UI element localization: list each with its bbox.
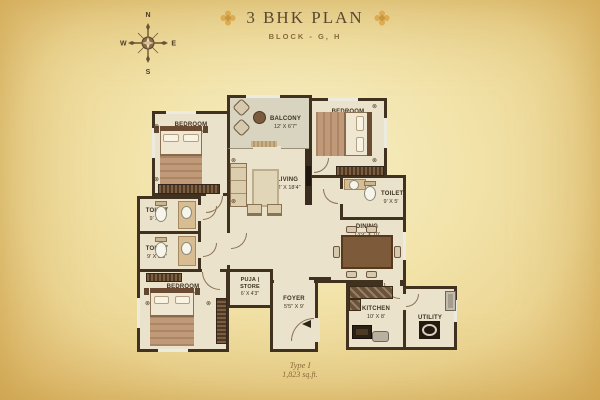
utility-sink — [445, 291, 456, 311]
bed-blanket — [316, 112, 346, 156]
double-bed — [150, 288, 194, 346]
balcony-table — [253, 111, 266, 124]
compass-west-label: W — [120, 41, 127, 48]
compass-icon — [128, 23, 168, 63]
kitchen-counter — [349, 286, 393, 299]
wc — [364, 186, 376, 201]
kitchen-counter — [349, 299, 361, 311]
ornament-icon — [220, 10, 236, 26]
rug — [252, 169, 279, 207]
ornament-icon — [374, 10, 390, 26]
wc — [155, 206, 167, 222]
pillow — [175, 296, 191, 304]
compass-east-label: E — [171, 41, 176, 48]
window — [246, 95, 280, 98]
door-mat — [251, 141, 277, 147]
pillow — [183, 134, 198, 142]
room-puja-store: PUJA | STORE 6' X 4'3" — [227, 269, 273, 308]
opening-living-foyer — [274, 280, 314, 286]
tv-unit — [306, 166, 311, 186]
opening-toilet2-door — [196, 242, 203, 258]
window — [384, 118, 387, 148]
stove — [352, 325, 372, 339]
wardrobe — [216, 298, 227, 344]
pillow — [163, 134, 178, 142]
room-dimension: 9' X 5' — [381, 199, 401, 206]
double-bed — [316, 112, 372, 156]
washbasin — [181, 242, 192, 255]
armchair — [267, 204, 282, 216]
room-name: PUJA | STORE — [230, 277, 270, 291]
column-marker-icon: ⊗ — [231, 158, 236, 164]
dining-chair — [366, 226, 377, 233]
bed-headboard — [150, 288, 194, 293]
washbasin — [181, 206, 192, 219]
plan-area-label: 1,823 sq.ft. — [0, 370, 600, 379]
dining-chair — [394, 246, 401, 258]
room-dimension: 6' X 4'3" — [230, 291, 270, 298]
opening-entrance-door — [313, 318, 320, 342]
floor-plan-page: N S W E 3 BHK PLAN B — [0, 0, 600, 400]
bed-headboard — [367, 112, 372, 156]
dining-chair — [333, 246, 340, 258]
column-marker-icon: ⊗ — [154, 124, 159, 130]
column-marker-icon: ⊗ — [145, 301, 150, 307]
title-bar: 3 BHK PLAN — [150, 8, 460, 28]
nightstand — [203, 126, 208, 133]
column-marker-icon: ⊗ — [154, 177, 159, 183]
opening-toilet1-door — [196, 205, 203, 221]
bed-headboard — [160, 126, 202, 131]
pillow — [154, 296, 170, 304]
double-bed — [160, 126, 202, 186]
sink-bowl — [448, 294, 453, 308]
column-marker-icon: ⊗ — [206, 301, 211, 307]
armchair — [247, 204, 262, 216]
bed-blanket — [160, 154, 202, 186]
window — [166, 111, 196, 114]
room-dimension: 12' X 6'7" — [264, 124, 307, 131]
window — [403, 232, 406, 260]
pillow — [356, 116, 364, 132]
kitchen-sink — [372, 331, 389, 342]
page-title: 3 BHK PLAN — [246, 8, 363, 28]
compass-south-label: S — [146, 69, 151, 76]
wardrobe — [158, 184, 220, 194]
window — [158, 349, 188, 352]
dining-table — [341, 235, 393, 269]
entrance-arrow-icon — [302, 320, 311, 328]
room-label: PUJA | STORE 6' X 4'3" — [230, 277, 270, 298]
bed-blanket — [150, 315, 194, 346]
dining-chair — [346, 226, 357, 233]
room-name: BALCONY — [264, 116, 307, 124]
room-foyer: FOYER 5'5" X 9' — [270, 280, 318, 352]
block-subtitle: BLOCK - G, H — [150, 32, 460, 41]
pillow — [356, 137, 364, 153]
column-marker-icon: ⊗ — [372, 104, 377, 110]
room-label: TOILET 9' X 5' — [381, 191, 401, 206]
column-marker-icon: ⊗ — [372, 158, 377, 164]
room-name: TOILET — [381, 191, 401, 199]
dining-chair — [346, 271, 357, 278]
plan-footer: Type I 1,823 sq.ft. — [0, 360, 600, 379]
window — [137, 298, 140, 328]
column-marker-icon: ⊗ — [231, 199, 236, 205]
plan-type-label: Type I — [0, 360, 600, 370]
room-dimension: 5'5" X 9' — [273, 304, 315, 311]
room-name: FOYER — [273, 296, 315, 304]
stove-top — [356, 329, 368, 335]
window — [328, 98, 358, 101]
room-label: FOYER 5'5" X 9' — [273, 296, 315, 311]
washing-machine — [419, 321, 440, 339]
wc — [155, 242, 167, 258]
nightstand — [195, 288, 200, 295]
washer-door — [422, 324, 437, 336]
wardrobe — [146, 273, 182, 282]
room-label: BALCONY 12' X 6'7" — [264, 116, 307, 131]
dining-chair — [366, 271, 377, 278]
washbasin — [349, 180, 359, 190]
room-dimension: 10' X 8' — [349, 314, 403, 321]
wardrobe — [336, 166, 384, 176]
nightstand — [144, 288, 149, 295]
opening-toilet-r-door — [338, 189, 345, 204]
